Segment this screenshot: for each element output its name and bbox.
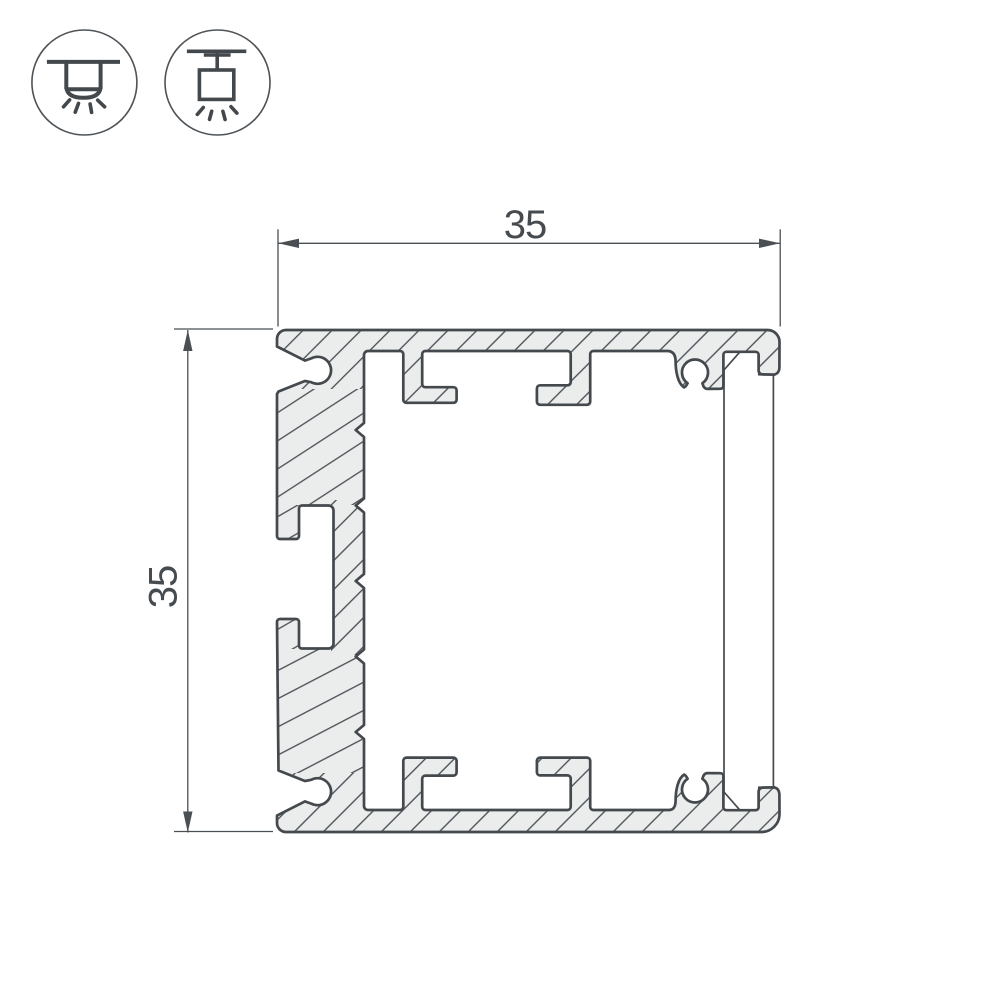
svg-text:35: 35	[504, 203, 547, 247]
svg-text:35: 35	[142, 566, 186, 609]
